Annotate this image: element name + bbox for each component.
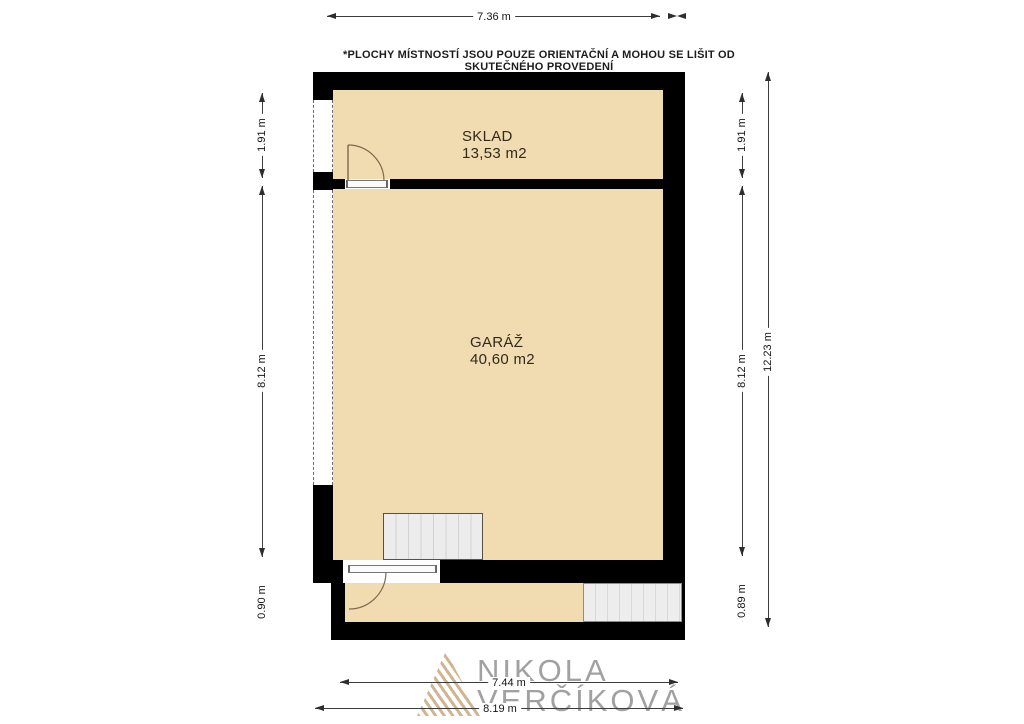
- disclaimer-text: *PLOCHY MÍSTNOSTÍ JSOU POUZE ORIENTAČNÍ …: [313, 49, 765, 73]
- stairs-garage: [383, 513, 483, 560]
- dim-label-left-sklad: 1.91 m: [256, 114, 268, 156]
- arrow-icon: [739, 186, 745, 195]
- floorplan-canvas: *PLOCHY MÍSTNOSTÍ JSOU POUZE ORIENTAČNÍ …: [0, 0, 1024, 724]
- arrow-icon: [259, 169, 265, 178]
- room-sklad-label: SKLAD 13,53 m2: [462, 128, 527, 162]
- dim-label-bottom-inner: 7.44 m: [488, 677, 530, 689]
- dim-label-left-entry: 0.90 m: [256, 581, 268, 623]
- room-garaz-name: GARÁŽ: [470, 334, 535, 351]
- arrow-icon: [739, 169, 745, 178]
- arrow-icon: [765, 72, 771, 81]
- room-garaz-area: 40,60 m2: [470, 351, 535, 368]
- wall-bottom: [331, 622, 685, 640]
- dim-label-bottom-outer: 8.19 m: [479, 703, 521, 715]
- dim-label-right-garaz: 8.12 m: [736, 350, 748, 392]
- door-sklad-threshold: [346, 180, 388, 188]
- dim-label-right-total: 12.23 m: [762, 328, 774, 376]
- door-entry-threshold: [348, 565, 437, 573]
- arrow-icon: [651, 13, 660, 19]
- arrow-icon: [765, 618, 771, 627]
- room-sklad-area: 13,53 m2: [462, 145, 527, 162]
- logo-triangle-icon: [417, 651, 480, 716]
- arrow-icon: [739, 93, 745, 102]
- dim-label-right-sklad: 1.91 m: [736, 114, 748, 156]
- window-sklad: [313, 100, 333, 172]
- arrow-icon: [259, 186, 265, 195]
- dim-label-left-garaz: 8.12 m: [256, 350, 268, 392]
- room-garaz: [333, 189, 663, 560]
- arrow-icon: [259, 93, 265, 102]
- arrow-icon: [739, 547, 745, 556]
- arrow-icon: [668, 13, 677, 19]
- window-garaz: [313, 190, 333, 485]
- dim-label-right-entry: 0.89 m: [736, 580, 748, 622]
- stairs-entry: [583, 583, 682, 622]
- room-garaz-label: GARÁŽ 40,60 m2: [470, 334, 535, 368]
- arrow-icon: [677, 13, 686, 19]
- wall-entry-left: [331, 583, 345, 622]
- arrow-icon: [327, 13, 336, 19]
- arrow-icon: [340, 679, 349, 685]
- arrow-icon: [259, 548, 265, 557]
- room-sklad-name: SKLAD: [462, 128, 527, 145]
- arrow-icon: [669, 679, 678, 685]
- arrow-icon: [674, 705, 683, 711]
- arrow-icon: [315, 705, 324, 711]
- wall-top: [313, 72, 685, 90]
- wall-right: [663, 72, 685, 640]
- room-entry: [345, 583, 583, 622]
- dim-label-top-width: 7.36 m: [473, 11, 515, 23]
